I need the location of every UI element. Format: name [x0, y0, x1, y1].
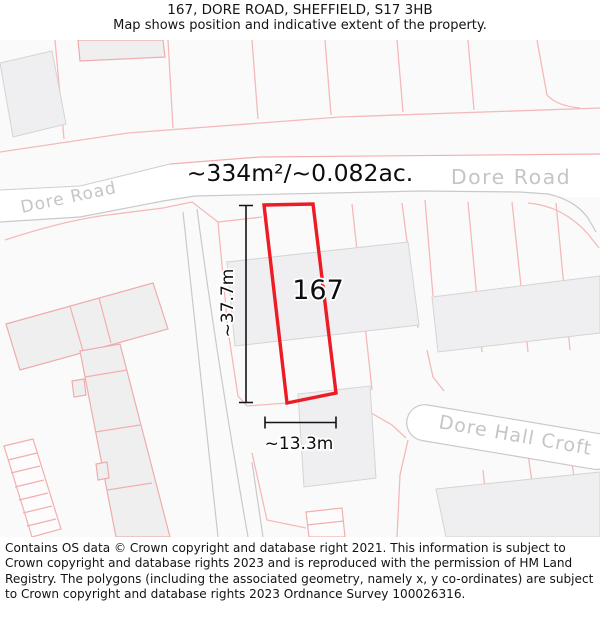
- plot-number-label: 167: [292, 275, 344, 306]
- area-label: ~334m²/~0.082ac.: [187, 159, 414, 187]
- dim-horizontal-label: ~13.3m: [265, 434, 334, 454]
- building-notch: [96, 462, 109, 480]
- building-notch: [72, 379, 86, 397]
- dore-road-label-center: Dore Road: [451, 165, 571, 189]
- dim-vertical-label: ~37.7m: [218, 269, 238, 338]
- property-map: Dore Road Dore Road Dore Hall Croft ~334…: [0, 0, 600, 625]
- copyright-notice: Contains OS data © Crown copyright and d…: [5, 541, 596, 602]
- building: [78, 40, 165, 61]
